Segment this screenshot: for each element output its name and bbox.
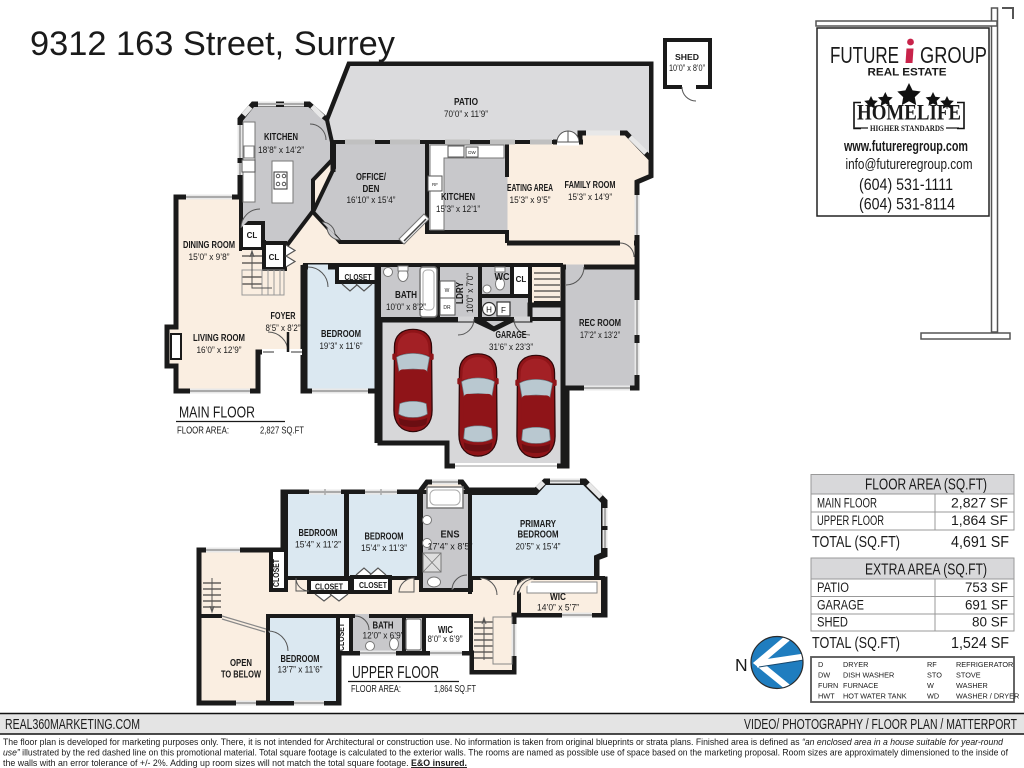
svg-text:1,864 SF: 1,864 SF: [951, 513, 1008, 528]
svg-text:GARAGE: GARAGE: [496, 330, 527, 341]
svg-text:WASHER / DRYER: WASHER / DRYER: [956, 692, 1019, 701]
svg-text:DRYER: DRYER: [843, 660, 868, 669]
svg-text:DISH WASHER: DISH WASHER: [843, 671, 894, 680]
svg-text:N: N: [735, 655, 748, 675]
svg-text:4,691 SF: 4,691 SF: [951, 534, 1009, 551]
svg-text:FURNACE: FURNACE: [843, 681, 878, 690]
svg-text:13’7” x 11’6”: 13’7” x 11’6”: [278, 665, 323, 675]
svg-text:HOT WATER TANK: HOT WATER TANK: [843, 692, 907, 701]
svg-text:EATING AREA: EATING AREA: [507, 183, 553, 194]
svg-text:HOMELIFE: HOMELIFE: [857, 100, 961, 125]
svg-text:ENS: ENS: [441, 530, 460, 541]
svg-text:BEDROOM: BEDROOM: [518, 530, 559, 541]
svg-text:FOYER: FOYER: [271, 311, 297, 322]
svg-text:PRIMARY: PRIMARY: [520, 519, 556, 530]
svg-text:DW: DW: [468, 150, 476, 155]
svg-text:MAIN FLOOR: MAIN FLOOR: [179, 405, 255, 422]
svg-text:19’3” x 11’6”: 19’3” x 11’6”: [320, 341, 363, 351]
svg-text:16’10” x 15’4”: 16’10” x 15’4”: [347, 195, 396, 205]
svg-text:15’4” x 11’2”: 15’4” x 11’2”: [295, 540, 341, 550]
svg-text:BEDROOM: BEDROOM: [281, 654, 320, 665]
svg-text:10’0” x 8’0”: 10’0” x 8’0”: [669, 63, 705, 73]
svg-text:2,827 SQ.FT: 2,827 SQ.FT: [260, 426, 304, 437]
svg-text:use” illustrated by the red da: use” illustrated by the red dashed line …: [3, 748, 1008, 758]
svg-text:BEDROOM: BEDROOM: [365, 532, 404, 543]
svg-text:F: F: [501, 306, 506, 315]
svg-text:FURN: FURN: [818, 681, 838, 690]
svg-text:CLOSET: CLOSET: [359, 581, 387, 590]
svg-text:DEN: DEN: [363, 184, 380, 195]
svg-text:WC: WC: [495, 272, 510, 283]
svg-text:BEDROOM: BEDROOM: [321, 329, 361, 340]
svg-text:8’0” x 6’9”: 8’0” x 6’9”: [428, 634, 463, 644]
svg-text:CL: CL: [269, 253, 280, 262]
svg-text:17’2” x 13’2”: 17’2” x 13’2”: [580, 330, 620, 340]
svg-text:DW: DW: [818, 671, 830, 680]
svg-text:The floor plan is developed fo: The floor plan is developed for marketin…: [3, 737, 1004, 747]
svg-text:15’4” x 11’3”: 15’4” x 11’3”: [361, 543, 407, 553]
svg-text:SHED: SHED: [675, 53, 699, 62]
svg-text:RF: RF: [432, 182, 438, 187]
svg-text:(604) 531-1111: (604) 531-1111: [859, 175, 953, 194]
svg-text:UPPER FLOOR: UPPER FLOOR: [352, 662, 439, 682]
svg-text:FUTURE: FUTURE: [830, 42, 899, 68]
svg-text:15’3” x 12’1”: 15’3” x 12’1”: [436, 204, 480, 214]
svg-text:CLOSET: CLOSET: [337, 623, 346, 651]
svg-text:1,864 SQ.FT: 1,864 SQ.FT: [434, 684, 476, 695]
svg-text:80 SF: 80 SF: [972, 615, 1008, 630]
svg-text:70’0” x 11’9”: 70’0” x 11’9”: [444, 109, 488, 119]
svg-text:CLOSET: CLOSET: [315, 583, 343, 592]
svg-text:LIVING ROOM: LIVING ROOM: [193, 333, 245, 344]
svg-text:16’0” x 12’9”: 16’0” x 12’9”: [197, 345, 242, 355]
svg-text:OFFICE/: OFFICE/: [356, 172, 386, 183]
svg-text:W: W: [927, 681, 934, 690]
svg-text:TOTAL (SQ.FT): TOTAL (SQ.FT): [812, 635, 900, 652]
svg-text:17’4” x 8’5”: 17’4” x 8’5”: [428, 542, 473, 552]
svg-text:PATIO: PATIO: [817, 580, 849, 595]
svg-text:info@futureregroup.com: info@futureregroup.com: [846, 157, 973, 173]
svg-text:www.futureregroup.com: www.futureregroup.com: [843, 139, 968, 155]
svg-text:MAIN FLOOR: MAIN FLOOR: [817, 496, 877, 511]
svg-text:20’5” x 15’4”: 20’5” x 15’4”: [516, 542, 561, 552]
svg-text:HWT: HWT: [818, 692, 835, 701]
svg-text:15’3” x 14’9”: 15’3” x 14’9”: [568, 192, 612, 202]
svg-text:CLOSET: CLOSET: [345, 273, 372, 282]
svg-text:31’6” x 23’3”: 31’6” x 23’3”: [489, 342, 533, 352]
svg-text:12’0” x 6’9”: 12’0” x 6’9”: [363, 631, 404, 641]
svg-text:REAL ESTATE: REAL ESTATE: [868, 67, 947, 79]
svg-text:H: H: [486, 306, 492, 315]
svg-text:2,827 SF: 2,827 SF: [951, 496, 1008, 511]
svg-text:BEDROOM: BEDROOM: [299, 528, 338, 539]
svg-text:15’0” x 9’8”: 15’0” x 9’8”: [189, 252, 230, 262]
svg-text:FLOOR AREA:: FLOOR AREA:: [177, 426, 229, 437]
svg-text:REAL360MARKETING.COM: REAL360MARKETING.COM: [5, 716, 140, 733]
svg-text:RF: RF: [927, 660, 937, 669]
svg-text:14’0” x 5’7”: 14’0” x 5’7”: [537, 603, 579, 613]
svg-text:STO: STO: [927, 671, 942, 680]
svg-text:TOTAL (SQ.FT): TOTAL (SQ.FT): [812, 534, 900, 551]
svg-text:1,524 SF: 1,524 SF: [951, 635, 1009, 652]
svg-text:EXTRA AREA (SQ.FT): EXTRA AREA (SQ.FT): [865, 562, 987, 579]
svg-text:WD: WD: [927, 692, 939, 701]
svg-text:D: D: [818, 660, 823, 669]
svg-text:FLOOR AREA:: FLOOR AREA:: [351, 684, 401, 695]
svg-text:KITCHEN: KITCHEN: [441, 192, 475, 203]
svg-text:10’0” x 7’0”: 10’0” x 7’0”: [465, 273, 475, 313]
svg-text:WASHER: WASHER: [956, 681, 988, 690]
svg-text:PATIO: PATIO: [454, 97, 478, 108]
svg-text:OPEN: OPEN: [230, 658, 252, 669]
svg-text:CL: CL: [516, 275, 527, 284]
svg-text:FLOOR AREA (SQ.FT): FLOOR AREA (SQ.FT): [865, 477, 987, 494]
svg-text:8’5” x 8’2”: 8’5” x 8’2”: [266, 323, 301, 333]
svg-text:UPPER FLOOR: UPPER FLOOR: [817, 513, 884, 528]
svg-text:(604) 531-8114: (604) 531-8114: [859, 195, 955, 214]
svg-text:STOVE: STOVE: [956, 671, 981, 680]
svg-text:the walls with an error tolera: the walls with an error tolerance of +/-…: [3, 758, 467, 768]
svg-text:691 SF: 691 SF: [965, 598, 1008, 613]
svg-text:WIC: WIC: [550, 592, 566, 603]
svg-text:TO BELOW: TO BELOW: [221, 670, 261, 681]
svg-text:CLOSET: CLOSET: [272, 559, 281, 587]
svg-text:18’8” x 14’2”: 18’8” x 14’2”: [258, 145, 304, 155]
svg-text:REC ROOM: REC ROOM: [579, 318, 621, 329]
svg-text:W: W: [445, 288, 450, 294]
svg-text:REFRIGERATOR: REFRIGERATOR: [956, 660, 1013, 669]
svg-text:VIDEO/ PHOTOGRAPHY / FLOOR PLA: VIDEO/ PHOTOGRAPHY / FLOOR PLAN / MATTER…: [744, 717, 1017, 733]
svg-text:9312 163 Street, Surrey: 9312 163 Street, Surrey: [30, 25, 395, 63]
svg-text:KITCHEN: KITCHEN: [264, 132, 298, 143]
svg-text:10’0” x 8’2”: 10’0” x 8’2”: [386, 302, 426, 312]
svg-text:GROUP: GROUP: [920, 42, 987, 68]
svg-text:753 SF: 753 SF: [965, 580, 1008, 595]
svg-text:FAMILY ROOM: FAMILY ROOM: [565, 180, 616, 191]
svg-text:HIGHER STANDARDS: HIGHER STANDARDS: [870, 124, 944, 133]
svg-text:BATH: BATH: [395, 290, 417, 301]
svg-text:15’3” x 9’5”: 15’3” x 9’5”: [510, 195, 551, 205]
svg-text:DINING ROOM: DINING ROOM: [183, 240, 235, 251]
svg-text:SHED: SHED: [817, 615, 848, 630]
svg-text:DR: DR: [443, 305, 451, 311]
svg-text:GARAGE: GARAGE: [817, 598, 864, 613]
svg-text:CL: CL: [247, 231, 258, 240]
